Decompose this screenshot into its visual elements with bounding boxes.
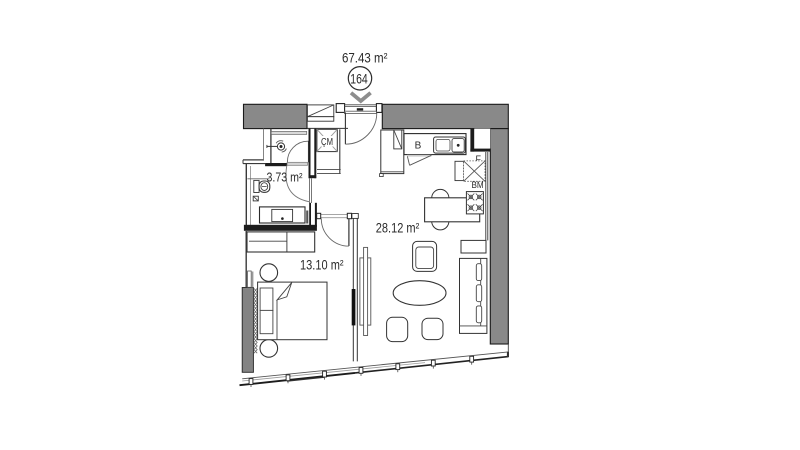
svg-text:BM: BM: [472, 180, 484, 191]
svg-text:164: 164: [350, 72, 368, 87]
svg-text:B: B: [415, 140, 422, 151]
svg-text:ÇM: ÇM: [321, 137, 333, 148]
svg-text:67.43 m²: 67.43 m²: [342, 51, 388, 66]
svg-text:28.12 m²: 28.12 m²: [376, 219, 420, 235]
svg-text:13.10 m²: 13.10 m²: [300, 256, 344, 272]
svg-text:3.73 m²: 3.73 m²: [267, 169, 303, 184]
